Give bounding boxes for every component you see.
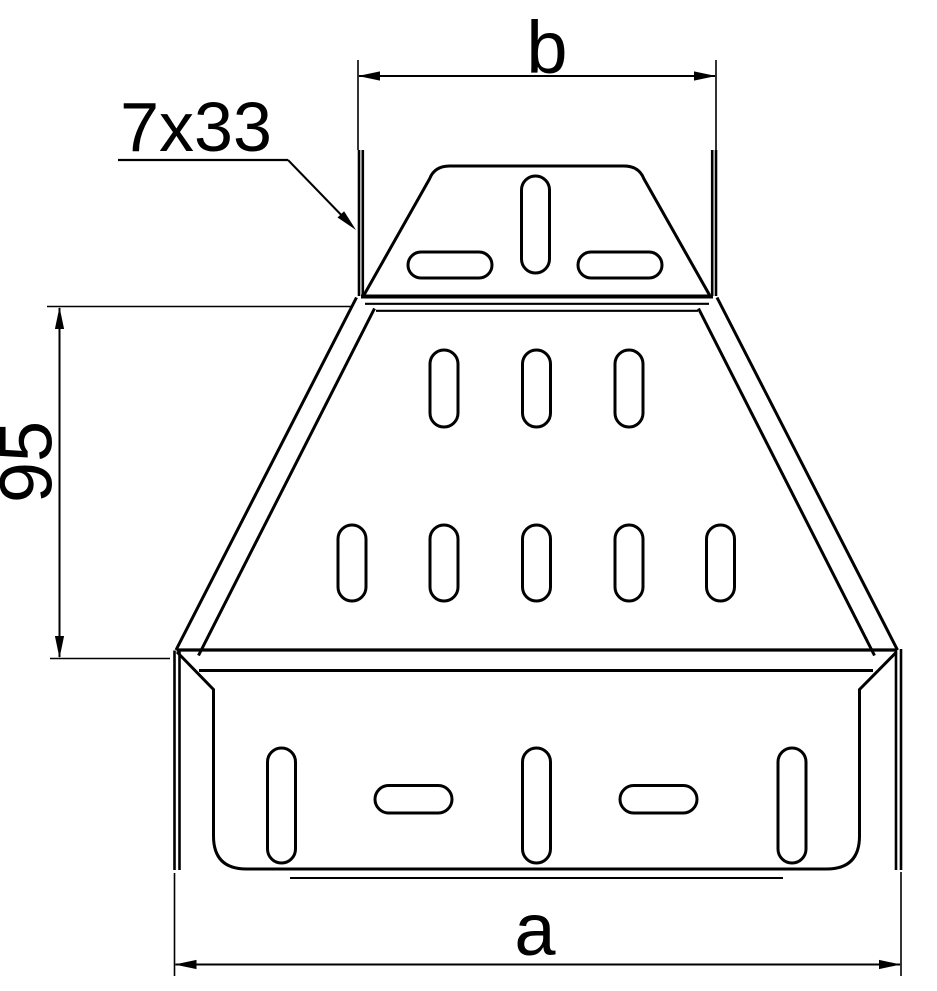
dimension-95: 95 — [0, 307, 353, 659]
dimension-a-label: a — [514, 888, 556, 971]
top-section — [359, 150, 716, 311]
callout-7x33: 7x33 — [118, 88, 356, 230]
technical-drawing-page: b 7x33 95 — [0, 0, 937, 991]
slot — [578, 252, 662, 278]
callout-leader-line — [288, 160, 350, 224]
slot — [375, 786, 452, 814]
slot — [615, 525, 643, 601]
slot — [268, 748, 296, 863]
slot — [707, 525, 735, 601]
arrowhead-up-icon — [55, 307, 64, 329]
slot — [338, 525, 366, 601]
right-side-band-outer-line — [717, 298, 898, 651]
slot — [620, 786, 697, 814]
arrowhead-down-icon — [55, 636, 64, 658]
middle-section — [176, 298, 898, 656]
slot — [778, 748, 806, 863]
bottom-section — [175, 649, 902, 878]
slot — [523, 748, 551, 863]
arrowhead-left-icon — [175, 960, 197, 969]
right-side-band-inner-line — [699, 309, 875, 656]
slot — [523, 525, 551, 601]
arrowhead-right-icon — [694, 71, 716, 80]
left-side-band-inner-line — [199, 309, 375, 656]
left-side-band-outer-line — [176, 298, 357, 651]
callout-7x33-label: 7x33 — [120, 88, 272, 166]
slot — [615, 350, 643, 427]
slot — [522, 176, 550, 273]
arrowhead-left-icon — [358, 71, 380, 80]
slot — [523, 350, 551, 427]
dimension-b-label: b — [526, 6, 567, 89]
dimension-b: b — [358, 6, 716, 150]
slot — [430, 525, 458, 601]
slot — [430, 350, 458, 427]
arrowhead-right-icon — [879, 960, 901, 969]
slot — [408, 252, 492, 278]
bottom-panel-outline — [214, 689, 860, 869]
dimension-95-label: 95 — [0, 421, 68, 503]
dimension-a: a — [175, 872, 902, 976]
reducer-drawing: b 7x33 95 — [0, 0, 937, 991]
